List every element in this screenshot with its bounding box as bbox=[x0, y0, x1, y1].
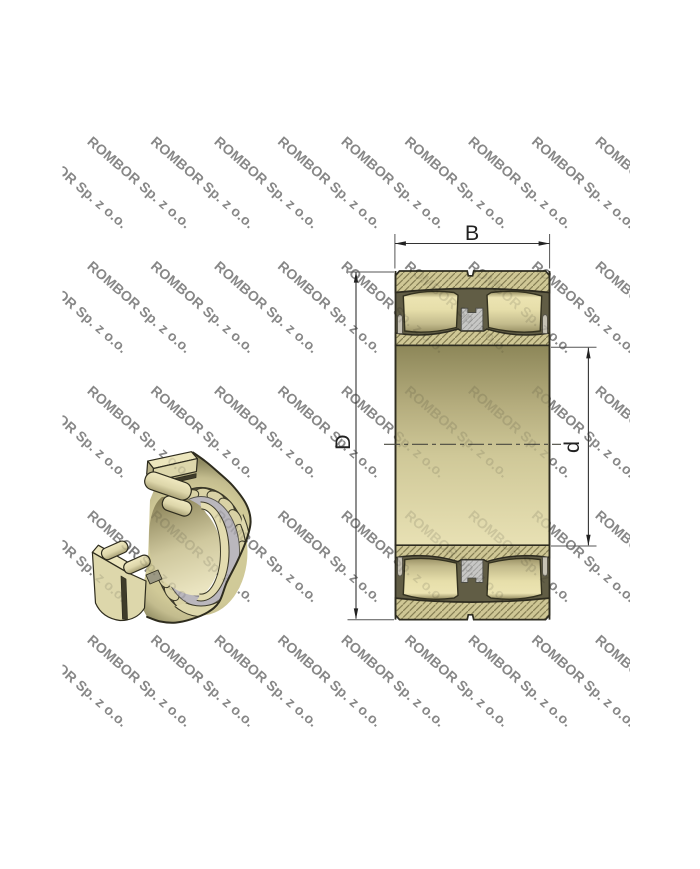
svg-text:ROMBOR Sp. z o.o.: ROMBOR Sp. z o.o. bbox=[402, 507, 512, 605]
svg-text:ROMBOR Sp. z o.o.: ROMBOR Sp. z o.o. bbox=[275, 133, 385, 231]
svg-text:ROMBOR Sp. z o.o.: ROMBOR Sp. z o.o. bbox=[148, 631, 258, 729]
svg-text:ROMBOR Sp. z o.o.: ROMBOR Sp. z o.o. bbox=[338, 631, 448, 729]
svg-text:ROMBOR Sp. z o.o.: ROMBOR Sp. z o.o. bbox=[592, 133, 700, 231]
svg-text:ROMBOR Sp. z o.o.: ROMBOR Sp. z o.o. bbox=[84, 382, 194, 480]
svg-text:ROMBOR Sp. z o.o.: ROMBOR Sp. z o.o. bbox=[275, 507, 385, 605]
svg-text:ROMBOR Sp. z o.o.: ROMBOR Sp. z o.o. bbox=[148, 382, 258, 480]
svg-text:ROMBOR Sp. z o.o.: ROMBOR Sp. z o.o. bbox=[402, 382, 512, 480]
svg-text:ROMBOR Sp. z o.o.: ROMBOR Sp. z o.o. bbox=[338, 258, 448, 356]
svg-text:ROMBOR Sp. z o.o.: ROMBOR Sp. z o.o. bbox=[529, 258, 639, 356]
svg-text:ROMBOR Sp. z o.o.: ROMBOR Sp. z o.o. bbox=[338, 507, 448, 605]
svg-text:ROMBOR Sp. z o.o.: ROMBOR Sp. z o.o. bbox=[275, 631, 385, 729]
svg-text:ROMBOR Sp. z o.o.: ROMBOR Sp. z o.o. bbox=[148, 133, 258, 231]
svg-text:ROMBOR Sp. z o.o.: ROMBOR Sp. z o.o. bbox=[592, 631, 700, 729]
svg-text:ROMBOR Sp. z o.o.: ROMBOR Sp. z o.o. bbox=[84, 631, 194, 729]
svg-text:ROMBOR Sp. z o.o.: ROMBOR Sp. z o.o. bbox=[465, 631, 575, 729]
svg-text:ROMBOR Sp. z o.o.: ROMBOR Sp. z o.o. bbox=[275, 382, 385, 480]
svg-text:ROMBOR Sp. z o.o.: ROMBOR Sp. z o.o. bbox=[402, 133, 512, 231]
svg-text:ROMBOR Sp. z o.o.: ROMBOR Sp. z o.o. bbox=[21, 133, 131, 231]
svg-text:ROMBOR Sp. z o.o.: ROMBOR Sp. z o.o. bbox=[465, 507, 575, 605]
svg-text:ROMBOR Sp. z o.o.: ROMBOR Sp. z o.o. bbox=[84, 507, 194, 605]
svg-text:ROMBOR Sp. z o.o.: ROMBOR Sp. z o.o. bbox=[148, 258, 258, 356]
svg-text:ROMBOR Sp. z o.o.: ROMBOR Sp. z o.o. bbox=[84, 133, 194, 231]
svg-text:ROMBOR Sp. z o.o.: ROMBOR Sp. z o.o. bbox=[148, 507, 258, 605]
svg-text:ROMBOR Sp. z o.o.: ROMBOR Sp. z o.o. bbox=[211, 382, 321, 480]
svg-text:ROMBOR Sp. z o.o.: ROMBOR Sp. z o.o. bbox=[402, 631, 512, 729]
svg-text:ROMBOR Sp. z o.o.: ROMBOR Sp. z o.o. bbox=[465, 133, 575, 231]
svg-text:ROMBOR Sp. z o.o.: ROMBOR Sp. z o.o. bbox=[402, 258, 512, 356]
svg-text:ROMBOR Sp. z o.o.: ROMBOR Sp. z o.o. bbox=[529, 507, 639, 605]
svg-text:ROMBOR Sp. z o.o.: ROMBOR Sp. z o.o. bbox=[21, 382, 131, 480]
svg-text:ROMBOR Sp. z o.o.: ROMBOR Sp. z o.o. bbox=[338, 382, 448, 480]
svg-text:ROMBOR Sp. z o.o.: ROMBOR Sp. z o.o. bbox=[211, 133, 321, 231]
svg-text:ROMBOR Sp. z o.o.: ROMBOR Sp. z o.o. bbox=[529, 631, 639, 729]
svg-text:ROMBOR Sp. z o.o.: ROMBOR Sp. z o.o. bbox=[21, 258, 131, 356]
svg-text:ROMBOR Sp. z o.o.: ROMBOR Sp. z o.o. bbox=[21, 631, 131, 729]
svg-text:ROMBOR Sp. z o.o.: ROMBOR Sp. z o.o. bbox=[211, 507, 321, 605]
svg-text:ROMBOR Sp. z o.o.: ROMBOR Sp. z o.o. bbox=[465, 382, 575, 480]
svg-text:ROMBOR Sp. z o.o.: ROMBOR Sp. z o.o. bbox=[592, 382, 700, 480]
svg-text:ROMBOR Sp. z o.o.: ROMBOR Sp. z o.o. bbox=[592, 507, 700, 605]
svg-text:ROMBOR Sp. z o.o.: ROMBOR Sp. z o.o. bbox=[211, 258, 321, 356]
svg-text:ROMBOR Sp. z o.o.: ROMBOR Sp. z o.o. bbox=[529, 133, 639, 231]
svg-text:ROMBOR Sp. z o.o.: ROMBOR Sp. z o.o. bbox=[465, 258, 575, 356]
svg-text:ROMBOR Sp. z o.o.: ROMBOR Sp. z o.o. bbox=[211, 631, 321, 729]
svg-text:ROMBOR Sp. z o.o.: ROMBOR Sp. z o.o. bbox=[338, 133, 448, 231]
svg-text:ROMBOR Sp. z o.o.: ROMBOR Sp. z o.o. bbox=[529, 382, 639, 480]
svg-text:ROMBOR Sp. z o.o.: ROMBOR Sp. z o.o. bbox=[84, 258, 194, 356]
svg-text:ROMBOR Sp. z o.o.: ROMBOR Sp. z o.o. bbox=[592, 258, 700, 356]
svg-text:ROMBOR Sp. z o.o.: ROMBOR Sp. z o.o. bbox=[275, 258, 385, 356]
svg-text:ROMBOR Sp. z o.o.: ROMBOR Sp. z o.o. bbox=[21, 507, 131, 605]
